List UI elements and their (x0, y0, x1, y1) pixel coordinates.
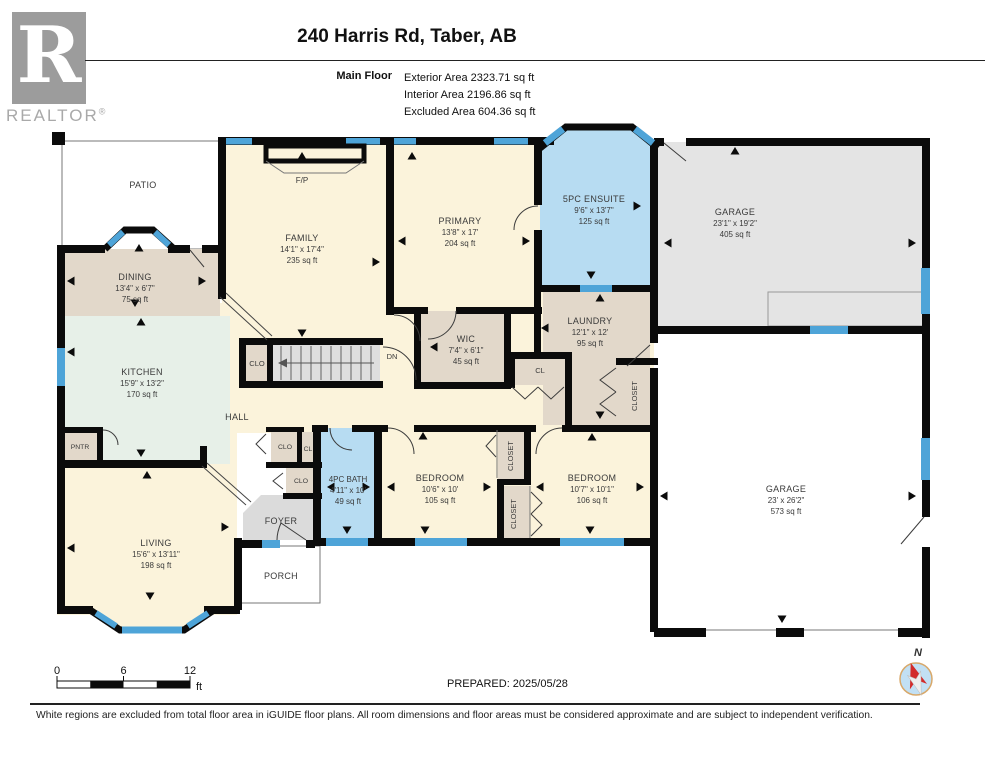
room-label-dining-name: DINING (118, 272, 151, 282)
patio-post (52, 132, 65, 145)
room-label-ensuite-dims: 9'6" x 13'7" (574, 206, 614, 215)
room-label-bedroom2-dims: 10'7" x 10'1" (570, 485, 614, 494)
room-label-living-name: LIVING (140, 538, 171, 548)
room-label-garage-lower-area: 573 sq ft (771, 507, 802, 516)
scale-tick-12: 12 (184, 665, 196, 677)
room-label-laundry-cl: CL (535, 366, 545, 375)
room-label-bath-dims: 4'11" x 10' (330, 486, 366, 495)
room-label-living-area: 198 sq ft (141, 561, 172, 570)
garage-bench-outline (768, 292, 924, 326)
room-label-family-dims: 14'1" x 17'4" (280, 245, 324, 254)
room-label-bedroom2-name: BEDROOM (568, 473, 617, 483)
room-label-kitchen-name: KITCHEN (121, 367, 163, 377)
room-label-closet-a: CLO (278, 444, 292, 451)
room-label-bedroom2-area: 106 sq ft (577, 496, 608, 505)
room-label-primary-area: 204 sq ft (445, 239, 476, 248)
room-label-patio: PATIO (129, 180, 156, 190)
room-garage-lower (654, 334, 922, 628)
room-label-dining-dims: 13'4" x 6'7" (115, 284, 155, 293)
room-label-ensuite-area: 125 sq ft (579, 217, 610, 226)
room-label-family-area: 235 sq ft (287, 256, 318, 265)
room-label-bedroom1-dims: 10'6" x 10' (422, 485, 459, 494)
room-label-porch: PORCH (264, 571, 298, 581)
room-label-closet-c: CLO (294, 478, 308, 485)
room-label-ensuite-name: 5PC ENSUITE (563, 194, 625, 204)
room-label-bedroom1-name: BEDROOM (416, 473, 465, 483)
room-label-garage-upper-dims: 23'1" x 19'2" (713, 219, 757, 228)
room-label-bedroom1-area: 105 sq ft (425, 496, 456, 505)
room-label-closet2: CLOSET (509, 499, 518, 529)
room-label-garage-upper-name: GARAGE (715, 207, 755, 217)
compass-icon: N (900, 647, 932, 698)
room-label-dining-area: 75 sq ft (122, 295, 149, 304)
room-label-wic-dims: 7'4" x 6'1" (449, 346, 484, 355)
room-label-closet-b: CL (304, 446, 313, 453)
room-label-laundry-dims: 12'1" x 12' (572, 328, 609, 337)
room-label-living-dims: 15'6" x 13'11" (132, 550, 180, 559)
room-label-primary-dims: 13'8" x 17' (442, 228, 479, 237)
room-label-bath-name: 4PC BATH (329, 475, 368, 484)
scale-tick-0: 0 (54, 665, 60, 677)
room-label-wic-area: 45 sq ft (453, 357, 480, 366)
room-label-foyer: FOYER (265, 516, 298, 526)
room-label-primary-name: PRIMARY (439, 216, 482, 226)
room-label-stair-closet: CLO (249, 359, 265, 368)
room-fills (52, 127, 926, 630)
room-label-closet1: CLOSET (506, 441, 515, 471)
stairs-down-label: DN (387, 352, 398, 361)
footer-divider (30, 703, 920, 705)
room-label-garage-lower-name: GARAGE (766, 484, 806, 494)
scale-tick-6: 6 (120, 665, 126, 677)
prepared-date: PREPARED: 2025/05/28 (447, 678, 568, 690)
fireplace-box (266, 146, 364, 161)
scale-bar: 0 6 12 ft (54, 665, 202, 693)
room-label-kitchen-dims: 15'9" x 13'2" (120, 379, 164, 388)
room-label-kitchen-area: 170 sq ft (127, 390, 158, 399)
room-label-hall: HALL (225, 412, 249, 422)
staircase (272, 344, 380, 382)
room-dining (62, 249, 220, 316)
room-label-bath-area: 49 sq ft (335, 497, 362, 506)
room-label-pantry: PNTR (71, 444, 90, 451)
scale-unit: ft (196, 681, 202, 693)
disclaimer-text: White regions are excluded from total fl… (36, 710, 966, 721)
room-label-laundry-name: LAUNDRY (568, 316, 613, 326)
compass-north-label: N (914, 647, 923, 659)
room-label-garage-lower-dims: 23' x 26'2" (768, 496, 805, 505)
room-family-primary-fill (222, 138, 544, 315)
room-label-family-name: FAMILY (285, 233, 318, 243)
room-label-garage-upper-area: 405 sq ft (720, 230, 751, 239)
room-label-laundry-closet: CLOSET (630, 381, 639, 411)
room-label-laundry-area: 95 sq ft (577, 339, 604, 348)
floor-plan: PATIO DINING 13'4" x 6'7" 75 sq ft FAMIL… (0, 0, 993, 768)
room-label-fireplace: F/P (296, 176, 308, 185)
room-label-wic-name: WIC (457, 334, 476, 344)
